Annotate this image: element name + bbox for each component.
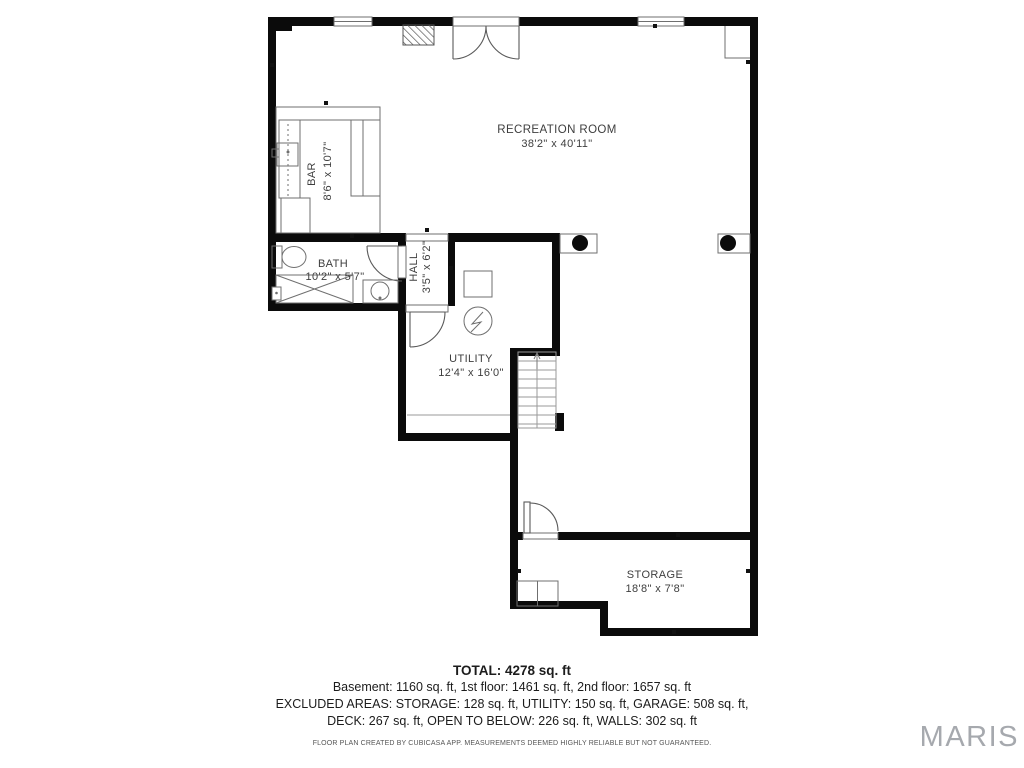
storage-door-opening xyxy=(523,533,558,539)
water-heater-icon xyxy=(464,271,492,297)
excluded-areas-text-2: DECK: 267 sq. ft, OPEN TO BELOW: 226 sq.… xyxy=(0,713,1024,730)
mid-vertical-wall xyxy=(510,348,518,609)
excluded-areas-text-1: EXCLUDED AREAS: STORAGE: 128 sq. ft, UTI… xyxy=(0,696,1024,713)
room-dims-recreation: 38'2" x 40'11" xyxy=(521,138,592,150)
utility-door-icon xyxy=(410,312,445,347)
floor-plan-page: RECREATION ROOM 38'2" x 40'11" BAR 8'6" … xyxy=(0,0,1024,768)
room-label-recreation: RECREATION ROOM xyxy=(497,124,617,136)
floor-plan-drawing: RECREATION ROOM 38'2" x 40'11" BAR 8'6" … xyxy=(0,0,1024,768)
french-door-frame xyxy=(453,17,519,26)
bar-cabinet xyxy=(281,198,310,233)
support-columns xyxy=(560,234,750,253)
room-dims-bath: 10'2" x 5'7" xyxy=(305,271,364,283)
room-label-hall: HALL xyxy=(408,252,420,281)
total-area-text: TOTAL: 4278 sq. ft xyxy=(0,662,1024,679)
bath-bottom-wall xyxy=(268,303,406,311)
hall-right-wall xyxy=(448,242,455,306)
bath-right-wall xyxy=(398,277,406,441)
hall-top-opening xyxy=(406,234,448,241)
hall-bottom-opening xyxy=(406,305,448,312)
utility-right-wall xyxy=(552,233,560,352)
room-dims-utility: 12'4" x 16'0" xyxy=(438,367,504,379)
furnace-icon xyxy=(464,307,492,335)
area-summary: TOTAL: 4278 sq. ft Basement: 1160 sq. ft… xyxy=(0,662,1024,747)
storage-bottom-left-wall xyxy=(510,601,608,609)
chimney-hatch-icon xyxy=(403,25,434,45)
storage-door-icon xyxy=(524,502,558,533)
utility-bottom-wall xyxy=(399,433,518,441)
room-dims-hall: 3'5" x 6'2" xyxy=(421,241,433,294)
utility-top-wall xyxy=(448,233,560,242)
maris-watermark: MARIS xyxy=(920,721,1019,754)
storage-top-wall xyxy=(558,532,758,540)
room-dims-bar: 8'6" x 10'7" xyxy=(322,141,334,200)
french-door-icon xyxy=(453,26,519,59)
storage-bottom-wall xyxy=(600,628,758,636)
bath-door-opening xyxy=(398,246,406,278)
room-label-bath: BATH xyxy=(318,258,348,270)
bar-right-counter xyxy=(351,120,380,196)
bar-left-counter xyxy=(279,120,300,198)
room-label-utility: UTILITY xyxy=(449,353,493,365)
walls xyxy=(268,17,758,636)
room-dims-storage: 18'8" x 7'8" xyxy=(625,583,684,595)
bath-top-wall xyxy=(268,233,406,242)
room-label-storage: STORAGE xyxy=(627,569,683,581)
wall-niche xyxy=(725,26,750,58)
right-exterior-wall xyxy=(750,17,758,636)
stairs-icon xyxy=(518,352,556,428)
room-label-bar: BAR xyxy=(306,162,318,186)
bath-door-icon xyxy=(367,246,402,281)
room-labels: RECREATION ROOM 38'2" x 40'11" BAR 8'6" … xyxy=(305,124,684,595)
cubicasa-disclaimer: FLOOR PLAN CREATED BY CUBICASA APP. MEAS… xyxy=(0,740,1024,747)
floor-areas-text: Basement: 1160 sq. ft, 1st floor: 1461 s… xyxy=(0,679,1024,696)
